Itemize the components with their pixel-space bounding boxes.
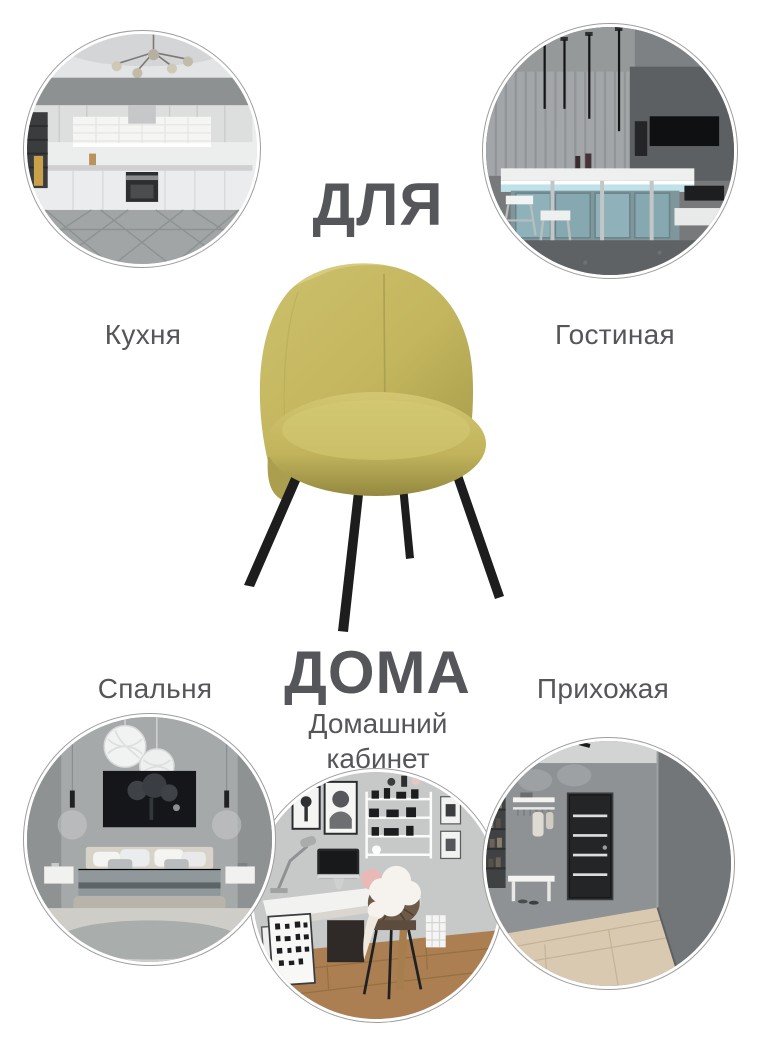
cabinet (635, 121, 647, 156)
home-office-photo-circle (249, 768, 504, 1023)
wire-basket (426, 915, 446, 947)
bottle-2 (585, 153, 591, 168)
kitchen-scene (27, 34, 257, 264)
chair-illustration (238, 252, 510, 638)
bedroom-scene (27, 717, 272, 962)
wall-posters (293, 782, 357, 834)
headline-bottom: ДОМА (275, 640, 480, 706)
chair-seat-cushion (266, 392, 486, 496)
bed (74, 847, 226, 917)
living-room-photo (486, 27, 734, 275)
range-hood (128, 105, 156, 123)
hallway-label: Прихожая (503, 672, 703, 706)
coffee-table (684, 186, 724, 201)
hallway-photo (486, 741, 731, 986)
kitchen-photo-circle (23, 30, 261, 268)
bedroom-label: Спальня (55, 672, 255, 706)
dark-floor (486, 240, 734, 275)
product-chair-photo (238, 252, 510, 638)
framed-picture (103, 771, 196, 827)
hallway-scene (486, 741, 731, 986)
bedroom-photo (27, 717, 272, 962)
bedroom-photo-circle (23, 713, 276, 966)
promo-collage: ДЛЯ Кухня Гостиная (0, 0, 757, 1040)
headline-top: ДЛЯ (278, 172, 478, 238)
sofa (674, 208, 724, 225)
home-office-photo (253, 772, 500, 1019)
cutting-board (89, 154, 96, 166)
hallway-photo-circle (482, 737, 735, 990)
home-office-scene (253, 772, 500, 1019)
upper-wall-band (27, 78, 257, 106)
kitchen-photo (27, 34, 257, 264)
oven (126, 172, 158, 202)
living-room-photo-circle (482, 23, 738, 279)
entrance-door (567, 792, 614, 900)
shelf-unit (27, 112, 48, 188)
living-room-scene (486, 27, 734, 275)
curtain-wall (486, 72, 630, 176)
bottle (575, 156, 580, 168)
ceiling (486, 741, 731, 763)
kitchen-label: Кухня (43, 318, 243, 352)
tiled-floor (27, 210, 257, 264)
rug (59, 920, 240, 959)
tv-screen (650, 116, 719, 146)
living-room-label: Гостиная (515, 318, 715, 352)
home-office-label: Домашний кабинет (293, 706, 463, 776)
book-shelf (486, 770, 506, 888)
countertop (32, 165, 253, 171)
leaning-posters (261, 914, 315, 986)
under-cabinet-light (73, 143, 211, 147)
